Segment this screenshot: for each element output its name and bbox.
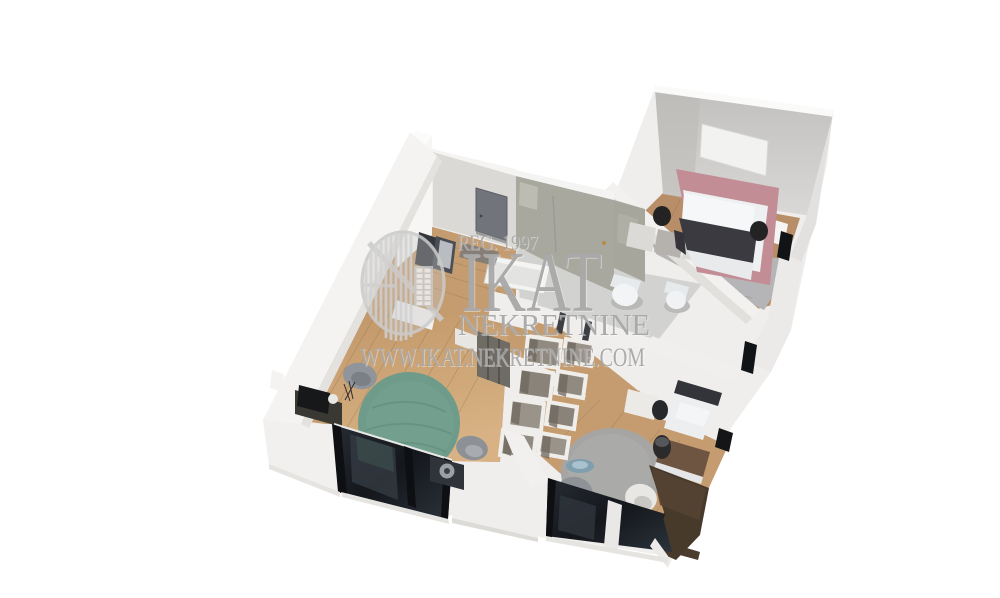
svg-text:NEKRETNINE: NEKRETNINE: [458, 307, 650, 342]
svg-text:WWW.IKAT.NEKRETNINE.COM: WWW.IKAT.NEKRETNINE.COM: [360, 343, 645, 372]
